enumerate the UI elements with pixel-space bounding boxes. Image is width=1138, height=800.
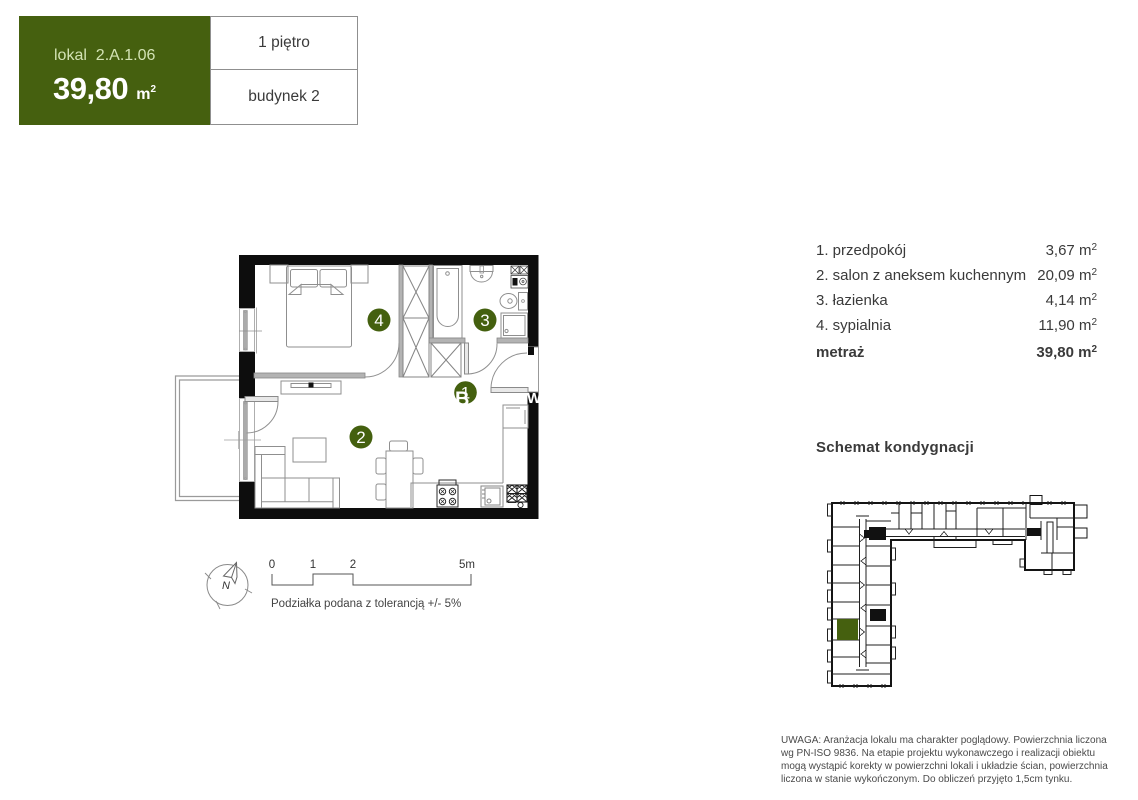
svg-text:B: B xyxy=(455,389,469,411)
svg-text:3: 3 xyxy=(480,311,489,330)
svg-text:1: 1 xyxy=(310,559,316,571)
svg-text:Podziałka podana z tolerancją: Podziałka podana z tolerancją +/- 5% xyxy=(271,598,461,610)
svg-text:2: 2 xyxy=(356,428,365,447)
svg-text:N: N xyxy=(222,580,230,592)
svg-text:0: 0 xyxy=(269,559,275,571)
svg-text:2: 2 xyxy=(350,559,356,571)
svg-text:5m: 5m xyxy=(459,559,475,571)
svg-text:W: W xyxy=(527,390,542,407)
svg-text:4: 4 xyxy=(374,311,383,330)
